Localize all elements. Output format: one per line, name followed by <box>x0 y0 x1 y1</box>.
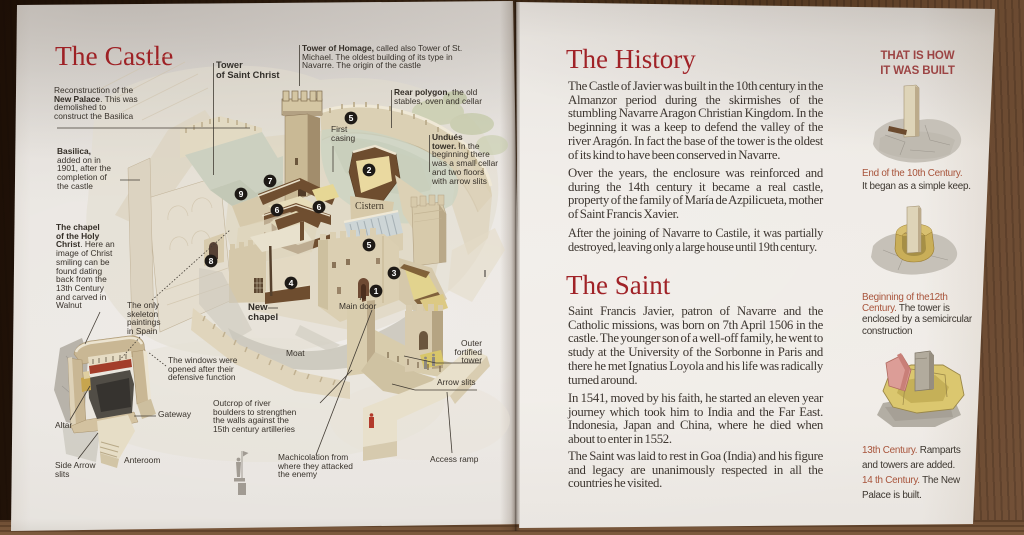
svg-text:2: 2 <box>367 165 372 175</box>
svg-text:3: 3 <box>392 268 397 278</box>
svg-text:4: 4 <box>289 278 294 288</box>
svg-text:1: 1 <box>374 286 379 296</box>
svg-text:6: 6 <box>275 205 280 215</box>
svg-text:8: 8 <box>209 256 214 266</box>
svg-text:5: 5 <box>349 113 354 123</box>
svg-text:5: 5 <box>367 240 372 250</box>
svg-text:6: 6 <box>317 202 322 212</box>
svg-text:7: 7 <box>268 176 273 186</box>
svg-text:9: 9 <box>239 189 244 199</box>
